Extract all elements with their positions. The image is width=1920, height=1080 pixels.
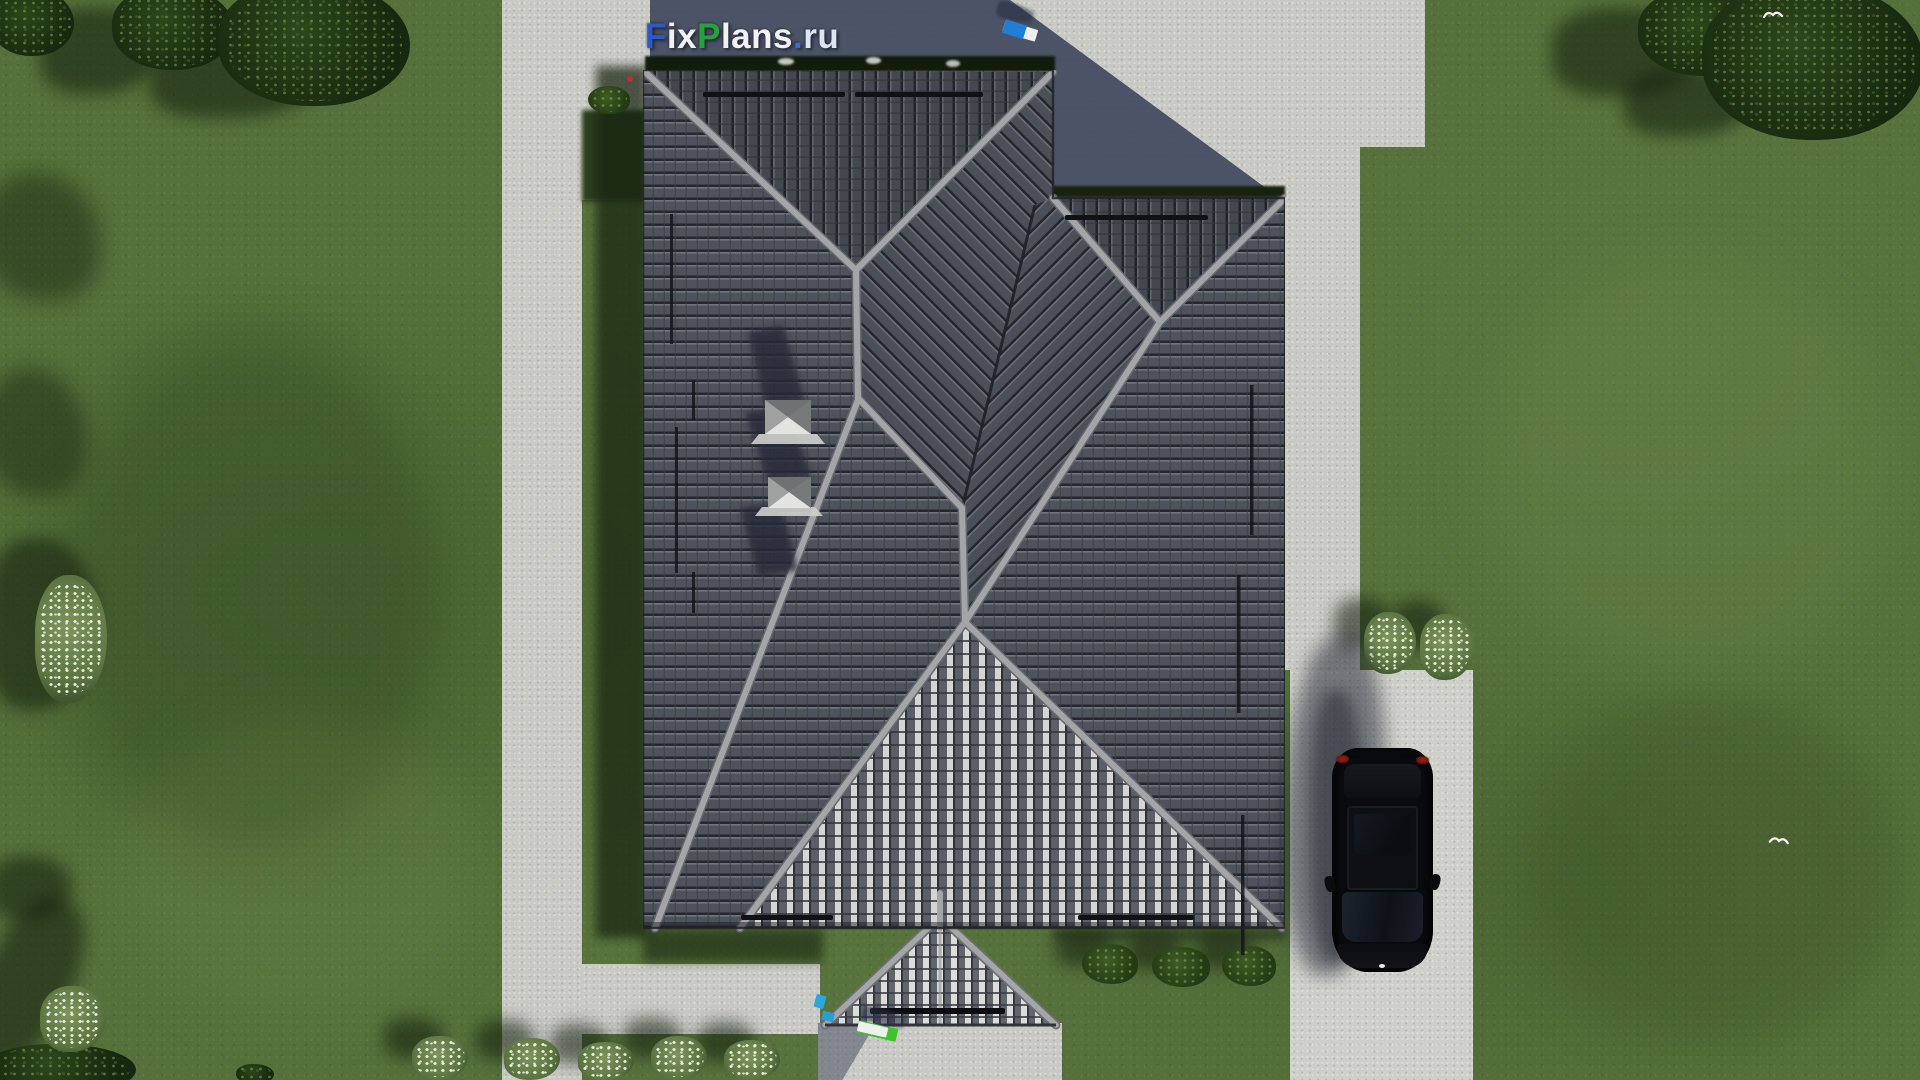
grass-dark-patch xyxy=(1480,260,1900,680)
brand-logo-part: F xyxy=(645,17,667,56)
tree-canopy xyxy=(1702,0,1920,140)
grass-light-patch xyxy=(120,720,480,1020)
brand-logo-part: ru xyxy=(803,17,839,56)
car-rear-window xyxy=(1344,764,1421,798)
aerial-house-render: FixPlans.ru xyxy=(0,0,1920,1080)
grass-dark-patch xyxy=(1520,700,1900,1040)
bird-icon xyxy=(1762,8,1784,22)
walkway-left xyxy=(502,0,582,1080)
bird-icon xyxy=(1767,833,1791,850)
plate-light xyxy=(1379,964,1385,968)
brand-logo-part: . xyxy=(793,17,803,56)
walkway-side-right xyxy=(1285,147,1360,670)
porch-roof xyxy=(825,917,1056,1025)
brand-logo: FixPlans.ru xyxy=(645,17,839,57)
brand-logo-part: lans xyxy=(721,17,793,56)
hedge-flowers xyxy=(866,57,881,64)
brand-logo-part: P xyxy=(697,17,721,56)
hedge-flowers xyxy=(778,58,794,65)
taillight-left xyxy=(1336,755,1349,763)
corner-bush xyxy=(588,86,630,114)
tree-canopy xyxy=(236,1064,274,1080)
car-sunroof xyxy=(1354,814,1411,854)
car xyxy=(1332,748,1433,972)
red-flower xyxy=(627,76,633,82)
house-shadow-west xyxy=(596,66,648,938)
brand-logo-part: ix xyxy=(667,17,697,56)
house-roof xyxy=(643,70,1285,1080)
car-windshield xyxy=(1342,892,1423,942)
hedge-flowers xyxy=(946,60,960,67)
pavement-top-right xyxy=(1285,0,1425,147)
taillight-right xyxy=(1416,756,1429,764)
